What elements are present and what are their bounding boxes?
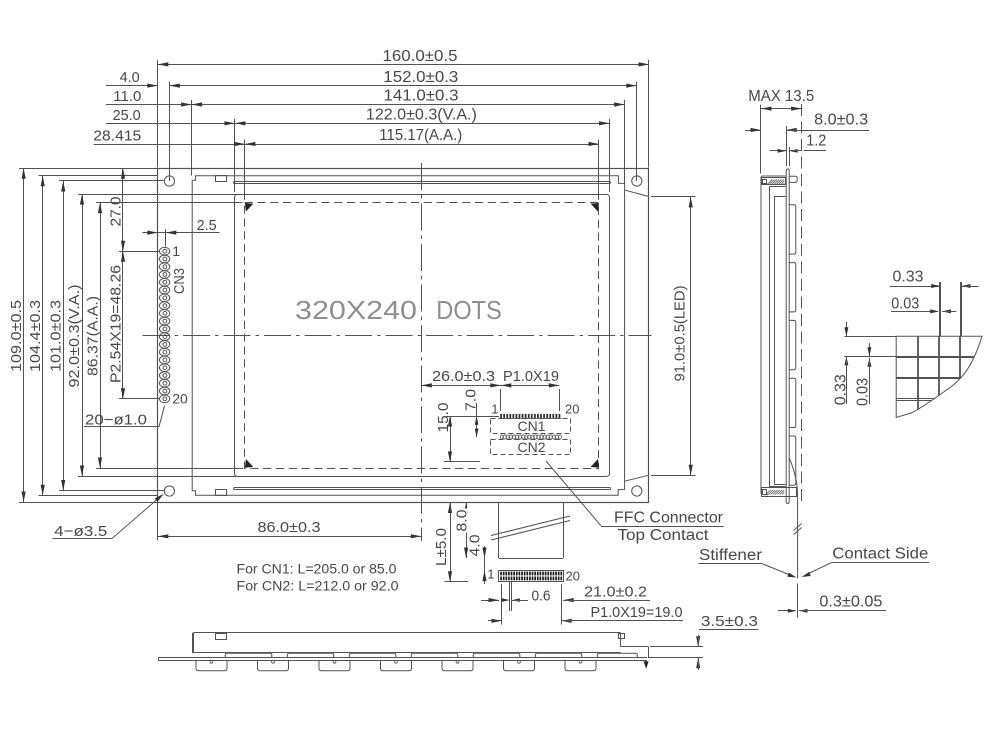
svg-text:104.4±0.3: 104.4±0.3 — [28, 300, 44, 372]
svg-text:20−ø1.0: 20−ø1.0 — [85, 412, 147, 429]
svg-text:109.0±0.5: 109.0±0.5 — [9, 300, 25, 372]
svg-text:320X240: 320X240 — [295, 297, 417, 325]
svg-text:0.03: 0.03 — [854, 378, 871, 406]
svg-text:8.0: 8.0 — [454, 510, 471, 532]
svg-text:L±5.0: L±5.0 — [433, 528, 450, 566]
svg-text:Top Contact: Top Contact — [618, 527, 710, 544]
svg-text:CN2: CN2 — [518, 439, 546, 455]
svg-text:0.6: 0.6 — [532, 588, 551, 605]
svg-text:2.5: 2.5 — [197, 217, 217, 234]
svg-text:11.0: 11.0 — [113, 88, 141, 105]
svg-text:28.415: 28.415 — [93, 128, 141, 145]
svg-text:Stiffener: Stiffener — [699, 547, 762, 564]
svg-text:20: 20 — [565, 402, 579, 417]
svg-text:0.3±0.05: 0.3±0.05 — [819, 593, 882, 610]
svg-text:CN3: CN3 — [171, 268, 188, 294]
svg-text:FFC Connector: FFC Connector — [614, 510, 723, 527]
svg-text:DOTS: DOTS — [436, 297, 502, 325]
svg-text:91.0±0.5(LED): 91.0±0.5(LED) — [672, 286, 688, 382]
svg-text:For CN2: L=212.0 or 92.0: For CN2: L=212.0 or 92.0 — [237, 578, 399, 593]
svg-text:MAX 13.5: MAX 13.5 — [748, 88, 814, 105]
svg-text:P2.54X19=48.26: P2.54X19=48.26 — [108, 265, 124, 383]
svg-text:115.17(A.A.): 115.17(A.A.) — [379, 127, 462, 144]
svg-text:20: 20 — [172, 391, 188, 407]
svg-text:4−ø3.5: 4−ø3.5 — [54, 523, 107, 540]
svg-text:CN1: CN1 — [518, 418, 546, 434]
svg-text:27.0: 27.0 — [108, 197, 124, 227]
svg-text:8.0±0.3: 8.0±0.3 — [814, 112, 868, 129]
svg-text:0.33: 0.33 — [893, 269, 924, 286]
svg-text:20: 20 — [566, 569, 580, 584]
svg-text:15.0: 15.0 — [435, 403, 452, 433]
svg-text:92.0±0.3(V.A.): 92.0±0.3(V.A.) — [67, 285, 83, 388]
svg-text:25.0: 25.0 — [113, 107, 141, 124]
svg-text:For CN1: L=205.0 or 85.0: For CN1: L=205.0 or 85.0 — [237, 562, 397, 577]
svg-text:160.0±0.5: 160.0±0.5 — [383, 48, 458, 65]
svg-text:86.0±0.3: 86.0±0.3 — [258, 519, 321, 536]
svg-text:141.0±0.3: 141.0±0.3 — [384, 88, 459, 105]
svg-text:P1.0X19=19.0: P1.0X19=19.0 — [591, 604, 683, 621]
svg-text:1: 1 — [491, 402, 498, 417]
svg-text:3.5±0.3: 3.5±0.3 — [701, 613, 758, 630]
svg-text:4.0: 4.0 — [466, 535, 483, 557]
svg-text:0.03: 0.03 — [891, 296, 919, 313]
svg-text:122.0±0.3(V.A.): 122.0±0.3(V.A.) — [366, 107, 477, 124]
svg-text:101.0±0.3: 101.0±0.3 — [48, 300, 64, 372]
svg-text:4.0: 4.0 — [120, 69, 140, 86]
svg-text:152.0±0.3: 152.0±0.3 — [383, 69, 458, 86]
svg-text:86.37(A.A.): 86.37(A.A.) — [85, 296, 101, 376]
svg-text:1: 1 — [172, 243, 180, 259]
svg-text:26.0±0.3: 26.0±0.3 — [432, 368, 495, 385]
svg-text:1.2: 1.2 — [806, 133, 826, 150]
svg-text:21.0±0.2: 21.0±0.2 — [584, 584, 647, 601]
svg-text:1: 1 — [487, 567, 494, 582]
svg-text:P1.0X19: P1.0X19 — [503, 368, 559, 385]
svg-text:Contact Side: Contact Side — [832, 545, 928, 562]
